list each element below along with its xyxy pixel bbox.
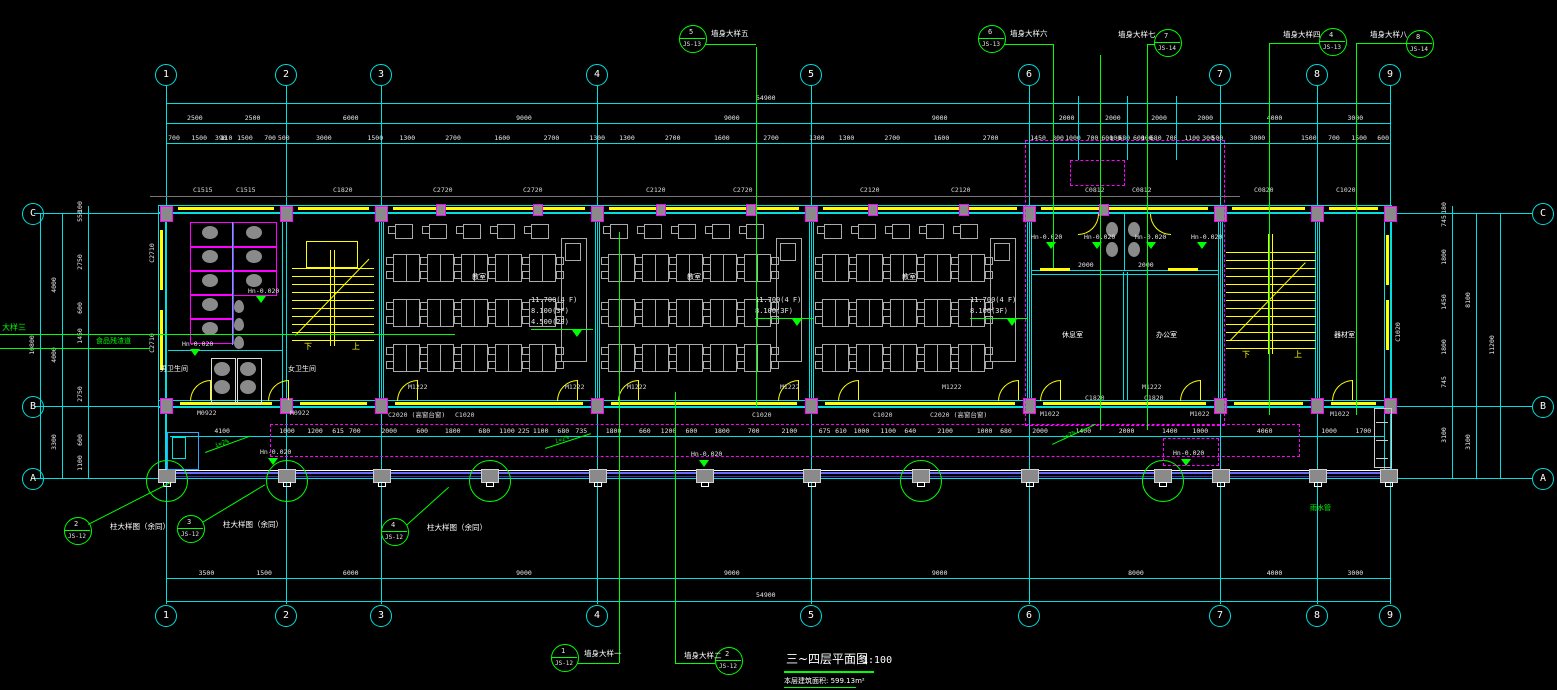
desk bbox=[926, 224, 944, 239]
balcony-column-base bbox=[378, 482, 386, 487]
desk bbox=[890, 344, 904, 372]
right-outer-dim-text: 11200 bbox=[1488, 330, 1496, 360]
stair-tread bbox=[1226, 340, 1316, 341]
grid-line-vertical bbox=[597, 86, 598, 604]
room-label: 男卫生间 bbox=[160, 365, 188, 374]
chair bbox=[601, 347, 609, 355]
level-marker bbox=[190, 349, 200, 356]
window-label: C2120 bbox=[860, 186, 880, 194]
chair bbox=[603, 226, 611, 234]
opening-label: C2020 (高窗台窗) bbox=[930, 411, 987, 419]
level-marker bbox=[256, 296, 266, 303]
wall-pier bbox=[868, 204, 878, 216]
stair-tread bbox=[1226, 268, 1316, 269]
chair bbox=[849, 361, 857, 369]
window-strip bbox=[1386, 235, 1389, 285]
window-label: C0820 bbox=[1254, 186, 1274, 194]
column bbox=[805, 206, 818, 222]
stair-down-label: 下 bbox=[1242, 350, 1250, 359]
column bbox=[280, 206, 293, 222]
desk bbox=[712, 224, 730, 239]
chair bbox=[951, 361, 959, 369]
grid-bubble-bottom: 4 bbox=[586, 605, 608, 627]
chair bbox=[703, 271, 711, 279]
top-detail-text: 600 bbox=[1373, 134, 1393, 142]
desk bbox=[723, 254, 737, 282]
desk bbox=[958, 254, 972, 282]
desk bbox=[642, 299, 656, 327]
desk bbox=[890, 299, 904, 327]
chair bbox=[849, 302, 857, 310]
top-detail-text: 700 bbox=[1324, 134, 1344, 142]
detail-bubble-divider bbox=[381, 531, 407, 532]
chair bbox=[917, 302, 925, 310]
column bbox=[1311, 398, 1324, 414]
chair bbox=[985, 361, 993, 369]
stair-tread bbox=[292, 268, 374, 269]
detail-bubble-ref: JS-13 bbox=[979, 41, 1003, 49]
balcony-column bbox=[373, 469, 391, 483]
top-detail-text: 3000 bbox=[1247, 134, 1267, 142]
chair bbox=[635, 302, 643, 310]
top-detail-text: 3000 bbox=[314, 134, 334, 142]
desk bbox=[903, 299, 917, 327]
toilet-fixture bbox=[246, 250, 262, 263]
top-span-text: 2000 bbox=[1195, 114, 1215, 122]
desk bbox=[757, 254, 771, 282]
detail-bubble-number: 1 bbox=[561, 647, 565, 655]
bottom-span-text: 6000 bbox=[341, 569, 361, 577]
chair bbox=[919, 226, 927, 234]
detail-bubble-divider bbox=[978, 38, 1004, 39]
chair bbox=[669, 302, 677, 310]
level-text: 11.700(4 F) bbox=[970, 296, 1016, 304]
grid-bubble-top: 8 bbox=[1306, 64, 1328, 86]
teacher-chair bbox=[780, 243, 796, 261]
room-label: 教室 bbox=[902, 273, 916, 282]
desk bbox=[395, 224, 413, 239]
bottom-total-line bbox=[166, 601, 1390, 602]
grid-bubble-bottom: 1 bbox=[155, 605, 177, 627]
window-label: C2710 bbox=[148, 238, 156, 268]
top-detail-text: 1500 bbox=[1349, 134, 1369, 142]
balcony-rail-bottom bbox=[166, 476, 1390, 477]
grid-bubble-right: B bbox=[1532, 396, 1554, 418]
chair bbox=[456, 226, 464, 234]
stair-up-label: 上 bbox=[1294, 350, 1302, 359]
desk bbox=[903, 344, 917, 372]
desk bbox=[723, 299, 737, 327]
chair bbox=[885, 226, 893, 234]
stair-tread bbox=[1226, 316, 1316, 317]
top-detail-text: 1300 bbox=[587, 134, 607, 142]
chair bbox=[522, 316, 530, 324]
desk bbox=[835, 254, 849, 282]
callout-leader-diag bbox=[202, 484, 265, 522]
chair bbox=[951, 316, 959, 324]
chair bbox=[669, 347, 677, 355]
partition-wall bbox=[809, 213, 810, 406]
chair bbox=[488, 347, 496, 355]
top-detail-text: 1600 bbox=[931, 134, 951, 142]
door-leaf bbox=[1018, 380, 1019, 400]
chair bbox=[669, 316, 677, 324]
level-text: 8.100(3F) bbox=[755, 307, 793, 315]
detail-bubble-label: 墙身大样七 bbox=[1118, 30, 1156, 39]
top-total-line bbox=[166, 103, 1390, 104]
window-strip bbox=[178, 207, 274, 210]
stair-up-label: 上 bbox=[352, 342, 360, 351]
desk bbox=[835, 299, 849, 327]
chair bbox=[817, 226, 825, 234]
grid-bubble-top: 5 bbox=[800, 64, 822, 86]
left-mid-dim-text: 4000 bbox=[50, 340, 58, 370]
rain-ladder-rung bbox=[1376, 458, 1388, 459]
chair bbox=[737, 361, 745, 369]
stair-tread bbox=[292, 292, 374, 293]
desk bbox=[937, 344, 951, 372]
top-detail-text: 1600 bbox=[712, 134, 732, 142]
partition-wall bbox=[599, 213, 600, 406]
chair bbox=[522, 361, 530, 369]
toilet-fixture bbox=[202, 274, 218, 287]
right-inner-dim-text: 745 bbox=[1440, 206, 1448, 236]
left-mid-dim-text: 4000 bbox=[50, 270, 58, 300]
stair-landing bbox=[306, 241, 358, 268]
toilet-fixture bbox=[202, 298, 218, 311]
top-detail-text: 1500 bbox=[189, 134, 209, 142]
chair bbox=[815, 347, 823, 355]
toilet-fixture bbox=[246, 274, 262, 287]
callout-leader-h bbox=[675, 663, 715, 664]
top-detail-text: 700 bbox=[164, 134, 184, 142]
stair-down-label: 下 bbox=[304, 342, 312, 351]
desk bbox=[892, 224, 910, 239]
desk bbox=[440, 344, 454, 372]
detail-bubble-number: 3 bbox=[187, 518, 191, 526]
area-underline bbox=[784, 687, 856, 688]
desk bbox=[393, 299, 407, 327]
balcony-rail-mid bbox=[166, 472, 1390, 474]
slope-label: i=2% bbox=[214, 438, 230, 450]
desk bbox=[529, 344, 543, 372]
chair bbox=[737, 271, 745, 279]
balcony-column bbox=[1212, 469, 1230, 483]
left-inner-dim-text: 600 bbox=[76, 293, 84, 323]
chair bbox=[849, 347, 857, 355]
door-label: M1222 bbox=[565, 383, 585, 391]
desk bbox=[869, 344, 883, 372]
desk bbox=[495, 299, 509, 327]
floor-level-label: Hn-0.020 bbox=[182, 340, 213, 348]
detail-bubble-ref: JS-12 bbox=[716, 663, 740, 671]
window-strip bbox=[1386, 300, 1389, 350]
desk bbox=[406, 299, 420, 327]
door-label: M1222 bbox=[627, 383, 647, 391]
chair bbox=[849, 257, 857, 265]
chair bbox=[490, 226, 498, 234]
top-detail-text: 1300 bbox=[807, 134, 827, 142]
desk bbox=[621, 299, 635, 327]
chair bbox=[703, 347, 711, 355]
callout-leader-h bbox=[1269, 43, 1319, 44]
left-mid-dim-text: 3300 bbox=[50, 427, 58, 457]
desk bbox=[427, 299, 441, 327]
teacher-chair bbox=[994, 243, 1010, 261]
chair bbox=[815, 257, 823, 265]
desk bbox=[427, 254, 441, 282]
west-wall-outer bbox=[158, 205, 159, 478]
chair bbox=[737, 347, 745, 355]
chair bbox=[556, 361, 564, 369]
bottom-span-text: 3500 bbox=[196, 569, 216, 577]
desk bbox=[642, 254, 656, 282]
desk bbox=[689, 299, 703, 327]
canopy-dashed-outline bbox=[270, 424, 1300, 457]
stair-rail bbox=[334, 250, 335, 346]
detail-bubble-divider bbox=[1406, 43, 1432, 44]
chair bbox=[522, 271, 530, 279]
right-mid-dim-text: 8100 bbox=[1464, 285, 1472, 315]
partition-wall bbox=[379, 213, 380, 406]
bottom-span-text: 4000 bbox=[1265, 569, 1285, 577]
floor-level-label: Hn-0.020 bbox=[1135, 233, 1166, 241]
detail-bubble-ref: JS-13 bbox=[1320, 44, 1344, 52]
detail-bubble-label: 柱大样图（余同） bbox=[223, 520, 283, 529]
chair bbox=[454, 361, 462, 369]
chair bbox=[917, 347, 925, 355]
grid-line-horizontal bbox=[34, 478, 1532, 479]
chair bbox=[524, 226, 532, 234]
level-text: 8.100(3F) bbox=[970, 307, 1008, 315]
bottom-span-text: 9000 bbox=[930, 569, 950, 577]
callout-leader-v bbox=[1053, 44, 1054, 268]
top-span-text: 2000 bbox=[1057, 114, 1077, 122]
callout-leader-v bbox=[1100, 55, 1101, 430]
wc-partition-wall bbox=[232, 222, 233, 345]
room-label: 教室 bbox=[687, 273, 701, 282]
grid-bubble-top: 9 bbox=[1379, 64, 1401, 86]
top-detail-text: 2700 bbox=[541, 134, 561, 142]
desk bbox=[924, 299, 938, 327]
grid-bubble-bottom: 9 bbox=[1379, 605, 1401, 627]
desk bbox=[495, 254, 509, 282]
opening-label: C2020 (高窗台窗) bbox=[388, 411, 445, 419]
chair bbox=[917, 271, 925, 279]
left-inner-dim-text: 550 bbox=[76, 201, 84, 231]
right-inner-dim-text: 3100 bbox=[1440, 420, 1448, 450]
chair bbox=[386, 271, 394, 279]
callout-leader-diag bbox=[88, 482, 170, 525]
grid-bubble-bottom: 2 bbox=[275, 605, 297, 627]
level-marker bbox=[572, 330, 582, 337]
top-detail-text: 1500 bbox=[235, 134, 255, 142]
basin-fixture bbox=[214, 380, 230, 394]
top-span-line bbox=[166, 123, 1390, 124]
urinal-fixture bbox=[234, 300, 244, 313]
door-label: M1222 bbox=[408, 383, 428, 391]
opening-label: C1020 bbox=[873, 411, 893, 419]
detail-bubble-divider bbox=[64, 530, 90, 531]
chair bbox=[386, 347, 394, 355]
chair bbox=[488, 302, 496, 310]
desk bbox=[440, 299, 454, 327]
detail-bubble-label: 柱大样图（余同） bbox=[427, 523, 487, 532]
detail-bubble-divider bbox=[177, 528, 203, 529]
column bbox=[1311, 206, 1324, 222]
chair bbox=[883, 316, 891, 324]
level-marker bbox=[792, 319, 802, 326]
floor-plan-canvas: 三~四层平面图 1:100 本层建筑面积: 599.13m² 112233445… bbox=[0, 0, 1557, 690]
chair bbox=[917, 257, 925, 265]
desk bbox=[676, 299, 690, 327]
window-strip bbox=[823, 207, 1017, 210]
stair-tread bbox=[1226, 260, 1316, 261]
detail-bubble-label: 柱大样图（余同） bbox=[110, 522, 170, 531]
window-label: C1515 bbox=[236, 186, 256, 194]
corridor-dim-text: 1000 bbox=[1319, 427, 1339, 435]
level-underline bbox=[755, 318, 813, 319]
desk bbox=[508, 299, 522, 327]
top-detail-text: 2700 bbox=[981, 134, 1001, 142]
door-label: M1222 bbox=[1142, 383, 1162, 391]
detail-bubble-label: 墙身大样五 bbox=[711, 29, 749, 38]
chair bbox=[703, 361, 711, 369]
right-inner-dim-line bbox=[1452, 206, 1453, 478]
basin-fixture bbox=[240, 362, 256, 376]
bottom-span-text: 3000 bbox=[1345, 569, 1365, 577]
chair bbox=[420, 271, 428, 279]
door-arc bbox=[838, 380, 859, 401]
desk bbox=[463, 224, 481, 239]
service-shaft-inner bbox=[172, 437, 186, 459]
door-arc bbox=[1332, 380, 1353, 401]
chair bbox=[420, 302, 428, 310]
room-label: 办公室 bbox=[1156, 331, 1177, 340]
chair bbox=[883, 347, 891, 355]
rain-pipe-note: 雨水管 bbox=[1310, 504, 1331, 513]
desk bbox=[723, 344, 737, 372]
desk bbox=[958, 344, 972, 372]
detail-bubble-divider bbox=[715, 660, 741, 661]
column-detail-circle bbox=[900, 460, 942, 502]
canopy-dashed-outline bbox=[1070, 160, 1125, 186]
chair bbox=[601, 257, 609, 265]
grid-line-vertical bbox=[811, 86, 812, 604]
window-label: C2710 bbox=[148, 328, 156, 358]
detail-bubble-ref: JS-12 bbox=[382, 534, 406, 542]
chair bbox=[703, 257, 711, 265]
desk bbox=[710, 254, 724, 282]
basin-fixture bbox=[240, 380, 256, 394]
window-strip bbox=[298, 207, 369, 210]
desk bbox=[406, 254, 420, 282]
top-detail-text: 2700 bbox=[761, 134, 781, 142]
chair bbox=[454, 316, 462, 324]
detail-bubble-label: 墙身大样四 bbox=[1283, 30, 1321, 39]
detail-bubble-ref: JS-12 bbox=[65, 533, 89, 541]
callout-leader-v bbox=[675, 392, 676, 663]
window-strip bbox=[1329, 207, 1378, 210]
detail-bubble-number: 6 bbox=[988, 28, 992, 36]
balcony-column bbox=[696, 469, 714, 483]
basin-fixture bbox=[214, 362, 230, 376]
window-label: C2720 bbox=[733, 186, 753, 194]
desk bbox=[971, 344, 985, 372]
level-text: 11.700(4 F) bbox=[531, 296, 577, 304]
callout-leader-h bbox=[1004, 44, 1053, 45]
window-strip bbox=[825, 402, 1015, 405]
balcony-column bbox=[1309, 469, 1327, 483]
bottom-span-text: 9000 bbox=[514, 569, 534, 577]
top-span-text: 2500 bbox=[185, 114, 205, 122]
window-label: C0812 bbox=[1085, 186, 1105, 194]
chair bbox=[522, 302, 530, 310]
detail-bubble-label: 墙身大样一 bbox=[584, 649, 622, 658]
balcony-rail-top bbox=[166, 470, 1390, 471]
desk bbox=[924, 254, 938, 282]
grid-bubble-right: C bbox=[1532, 203, 1554, 225]
chair bbox=[851, 226, 859, 234]
top-detail-text: 2700 bbox=[882, 134, 902, 142]
door-leaf bbox=[210, 380, 211, 400]
bottom-total-dim: 54900 bbox=[756, 591, 776, 599]
balcony-column bbox=[589, 469, 607, 483]
desk bbox=[393, 344, 407, 372]
right-inner-dim-text: 1800 bbox=[1440, 332, 1448, 362]
grid-line-vertical bbox=[1317, 86, 1318, 604]
right-mid-dim-text: 3100 bbox=[1464, 427, 1472, 457]
detail-bubble-label: 墙身大样八 bbox=[1370, 30, 1408, 39]
callout-leader-v bbox=[1147, 44, 1148, 430]
detail-bubble-ref: JS-12 bbox=[178, 531, 202, 539]
chair bbox=[454, 347, 462, 355]
desk bbox=[710, 299, 724, 327]
partition-wall bbox=[383, 213, 384, 406]
desk bbox=[429, 224, 447, 239]
opening-label: C1020 bbox=[455, 411, 475, 419]
opening-label: C1820 bbox=[1085, 394, 1105, 402]
desk bbox=[822, 299, 836, 327]
floor-level-label: Hn-0.020 bbox=[1031, 233, 1062, 241]
top-span-text: 4000 bbox=[1265, 114, 1285, 122]
desk bbox=[858, 224, 876, 239]
callout-leader-h bbox=[705, 44, 756, 45]
detail-leader bbox=[0, 334, 455, 335]
left-inner-dim-text: 1100 bbox=[76, 448, 84, 478]
detail-bubble-number: 4 bbox=[391, 521, 395, 529]
top-detail-text: 1300 bbox=[397, 134, 417, 142]
column bbox=[1384, 206, 1397, 222]
bottom-span-text: 1500 bbox=[254, 569, 274, 577]
chair bbox=[454, 302, 462, 310]
detail-bubble-ref: JS-14 bbox=[1155, 45, 1179, 53]
room-label: 女卫生间 bbox=[288, 365, 316, 374]
window-label: C2120 bbox=[646, 186, 666, 194]
desk bbox=[497, 224, 515, 239]
desk bbox=[529, 254, 543, 282]
chair bbox=[815, 302, 823, 310]
chair bbox=[635, 257, 643, 265]
balcony-column-base bbox=[808, 482, 816, 487]
desk bbox=[406, 344, 420, 372]
chair bbox=[883, 257, 891, 265]
balcony-column bbox=[803, 469, 821, 483]
detail-bubble-number: 4 bbox=[1329, 31, 1333, 39]
desk bbox=[474, 299, 488, 327]
chair bbox=[601, 271, 609, 279]
stair-tread bbox=[292, 284, 374, 285]
